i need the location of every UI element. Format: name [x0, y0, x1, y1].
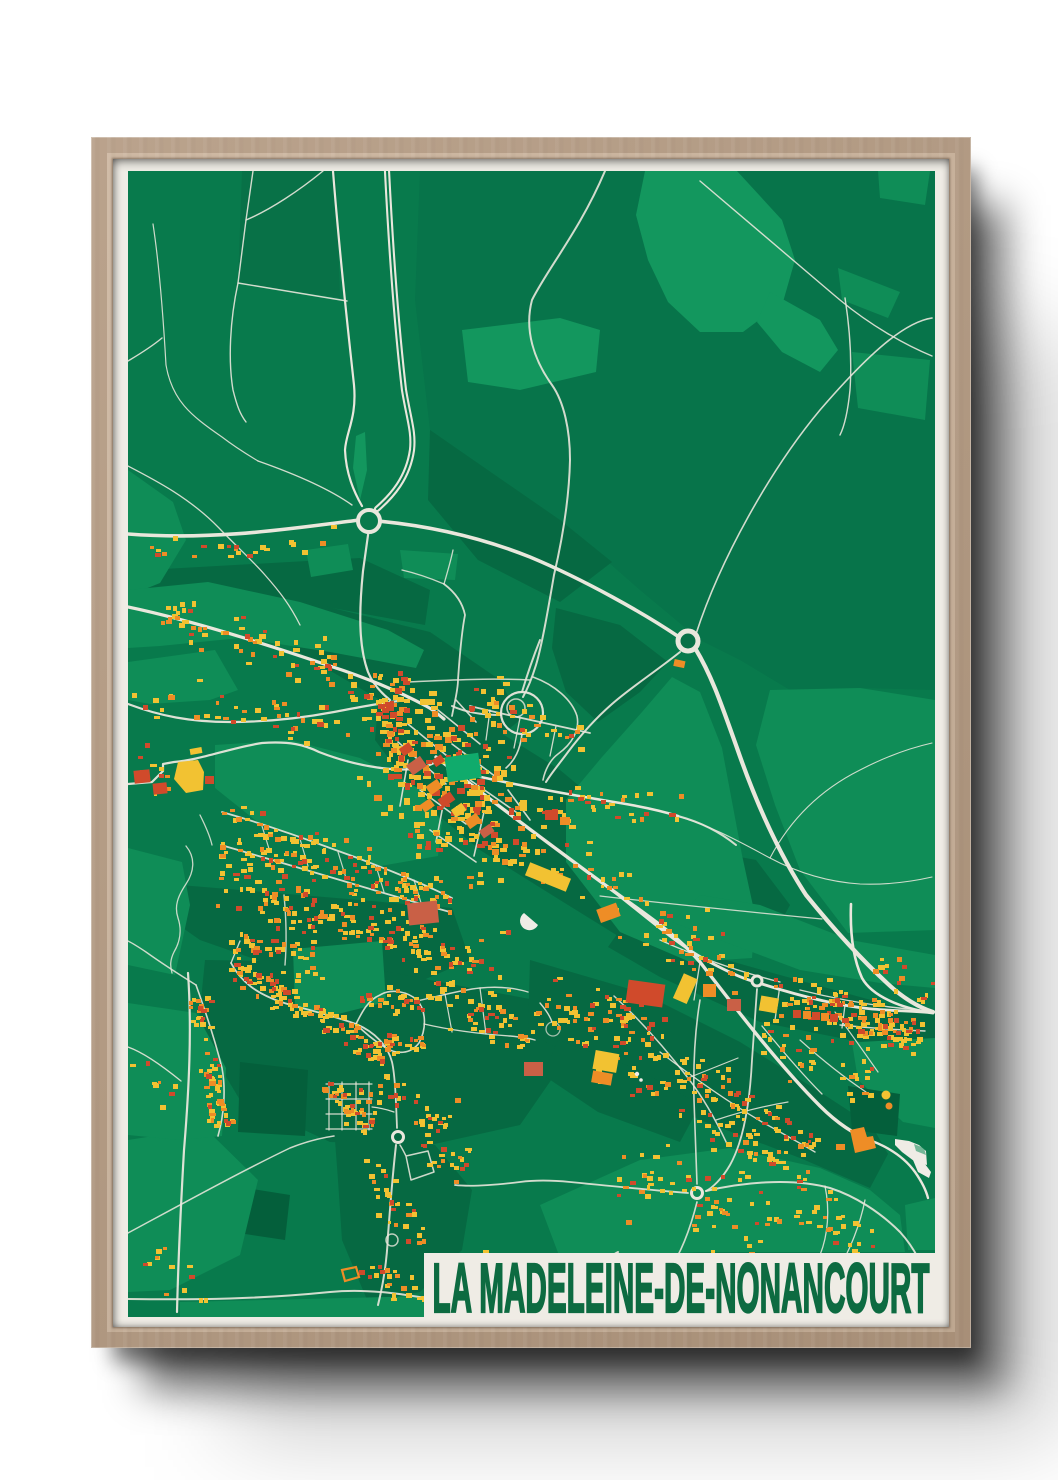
- svg-text:LA MADELEINE-DE-NONANCOURT: LA MADELEINE-DE-NONANCOURT: [433, 1249, 930, 1317]
